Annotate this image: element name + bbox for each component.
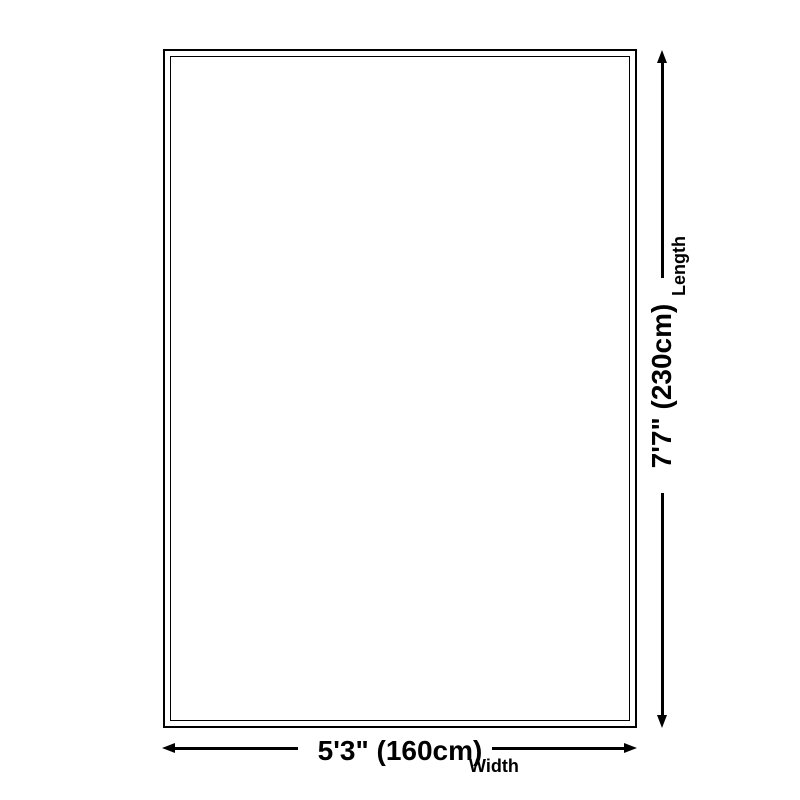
length-dimension-label: Length	[670, 236, 688, 296]
length-dimension-value: 7'7" (230cm)	[648, 304, 676, 469]
width-arrow-line-right	[492, 747, 626, 750]
width-dimension-label: Width	[469, 757, 519, 775]
rug-inner-outline	[170, 56, 630, 721]
arrowhead-down-icon	[657, 715, 667, 728]
rug-outline	[163, 49, 637, 728]
width-dimension-value: 5'3" (160cm)	[163, 737, 637, 765]
length-arrow-line-top	[661, 61, 664, 278]
length-arrow-line-bottom	[661, 493, 664, 716]
arrowhead-right-icon	[624, 743, 637, 753]
rug-dimension-diagram: 5'3" (160cm) Width 7'7" (230cm) Length	[0, 0, 800, 800]
